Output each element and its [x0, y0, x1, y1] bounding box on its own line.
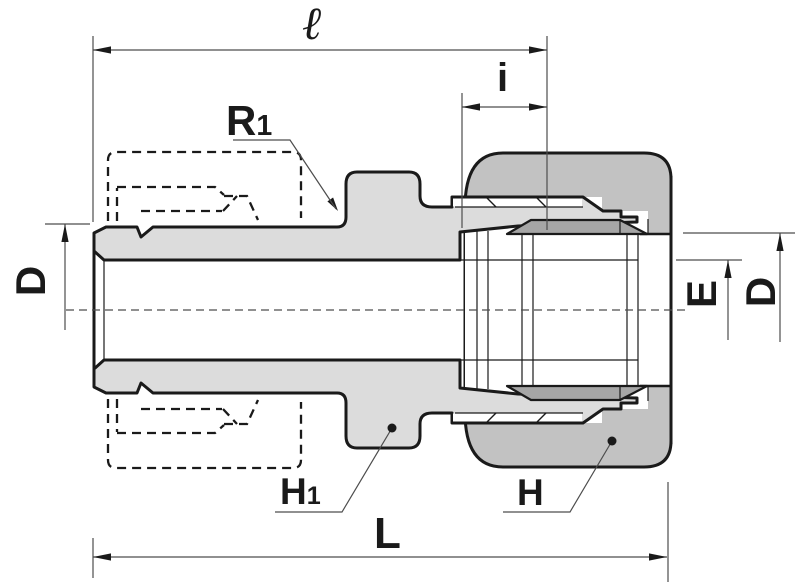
dim-label-r1-sub: 1: [256, 110, 272, 142]
fitting-section-drawing: ℓ i R1 D E D H1 H L: [0, 0, 800, 584]
thread-gap-lower: [453, 414, 582, 422]
dim-label-r1: R1: [226, 100, 272, 142]
dim-label-d-left: D: [10, 266, 52, 296]
arrow-d-right-up: [776, 233, 783, 251]
dim-label-e: E: [681, 280, 723, 308]
dim-label-h: H: [517, 474, 544, 511]
dim-label-ell: ℓ: [302, 0, 321, 46]
leader-r1: [233, 140, 336, 209]
thread-gap-upper: [453, 199, 582, 207]
dim-label-h1-sub: 1: [307, 482, 321, 510]
dim-label-h1-main: H: [280, 471, 307, 512]
arrow-l-left: [93, 553, 111, 560]
dim-label-d-right: D: [740, 277, 782, 307]
leader-dot-h: [608, 437, 617, 446]
dim-label-r1-main: R: [226, 97, 256, 144]
arrow-d-left-up: [61, 224, 68, 242]
arrow-i-right: [529, 103, 547, 110]
dim-label-l: L: [374, 512, 401, 556]
phantom-upper-inner: [117, 187, 258, 221]
arrow-l-right: [649, 553, 667, 560]
leader-dot-h1: [388, 424, 397, 433]
dim-label-i: i: [497, 58, 508, 98]
arrow-ell-left: [93, 46, 111, 53]
ferrule-lower: [507, 386, 647, 400]
phantom-lower-inner: [117, 399, 258, 433]
dimension-lines: [45, 36, 795, 582]
arrow-i-left: [462, 103, 480, 110]
ferrule-upper: [507, 220, 647, 234]
arrow-e-up: [724, 260, 731, 278]
dim-label-h1: H1: [280, 473, 321, 510]
arrowheads: [61, 46, 783, 560]
arrow-ell-right: [529, 46, 547, 53]
